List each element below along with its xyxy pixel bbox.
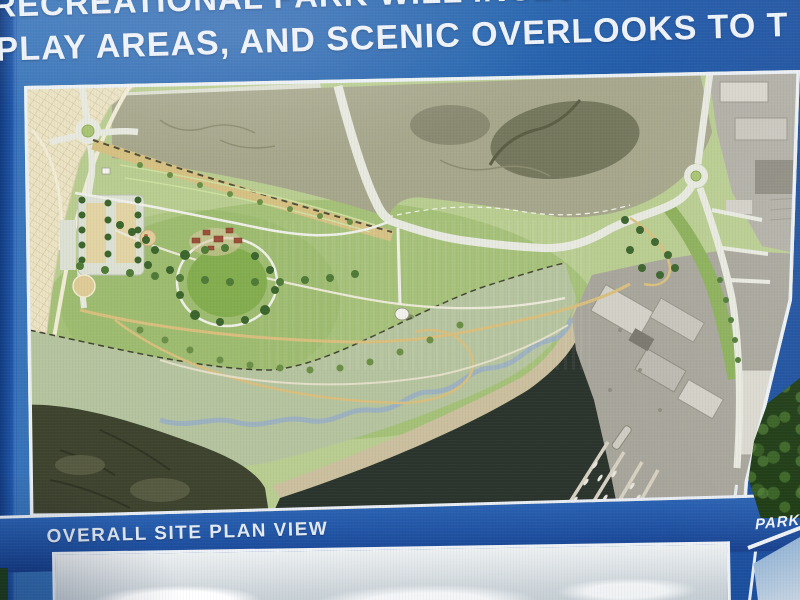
ball-diamond bbox=[73, 275, 95, 297]
sign-photo: RECREATIONAL PARK WILL INCLUDE TRAIL PLA… bbox=[0, 0, 800, 600]
site-plan-map bbox=[20, 70, 800, 520]
foliage-bottom-left bbox=[0, 568, 8, 600]
site-plan-caption: OVERALL SITE PLAN VIEW bbox=[46, 519, 328, 549]
bottom-left-panel bbox=[52, 541, 731, 600]
water-tank bbox=[395, 308, 409, 320]
site-plan-panel bbox=[20, 70, 800, 520]
clouds bbox=[55, 544, 728, 600]
